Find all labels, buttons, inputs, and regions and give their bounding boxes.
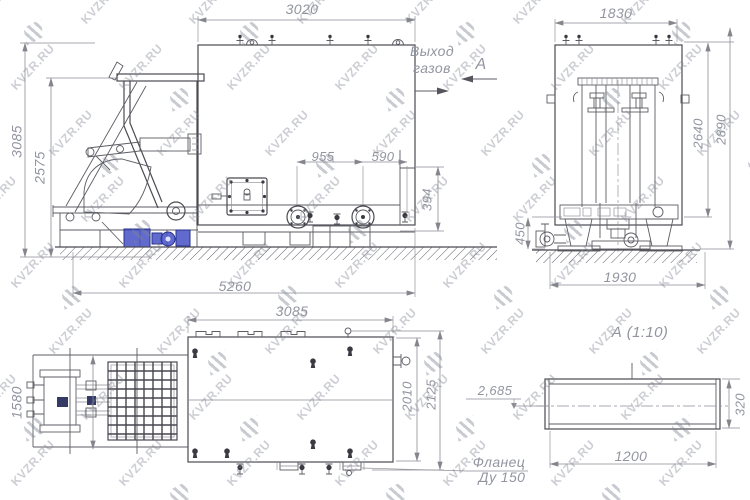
drawing-linework: [0, 0, 750, 500]
drive-motor: [124, 229, 190, 247]
access-hatch: [212, 178, 267, 215]
plan-view-linework: [27, 316, 528, 476]
engineering-drawing: KVZR.RUKVZR.RUKVZR.RUKVZR.RUKVZR.RUKVZR.…: [0, 0, 750, 500]
side-view-linework: [20, 16, 497, 297]
detail-view-linework: [466, 363, 740, 468]
end-view-linework: [528, 19, 734, 289]
